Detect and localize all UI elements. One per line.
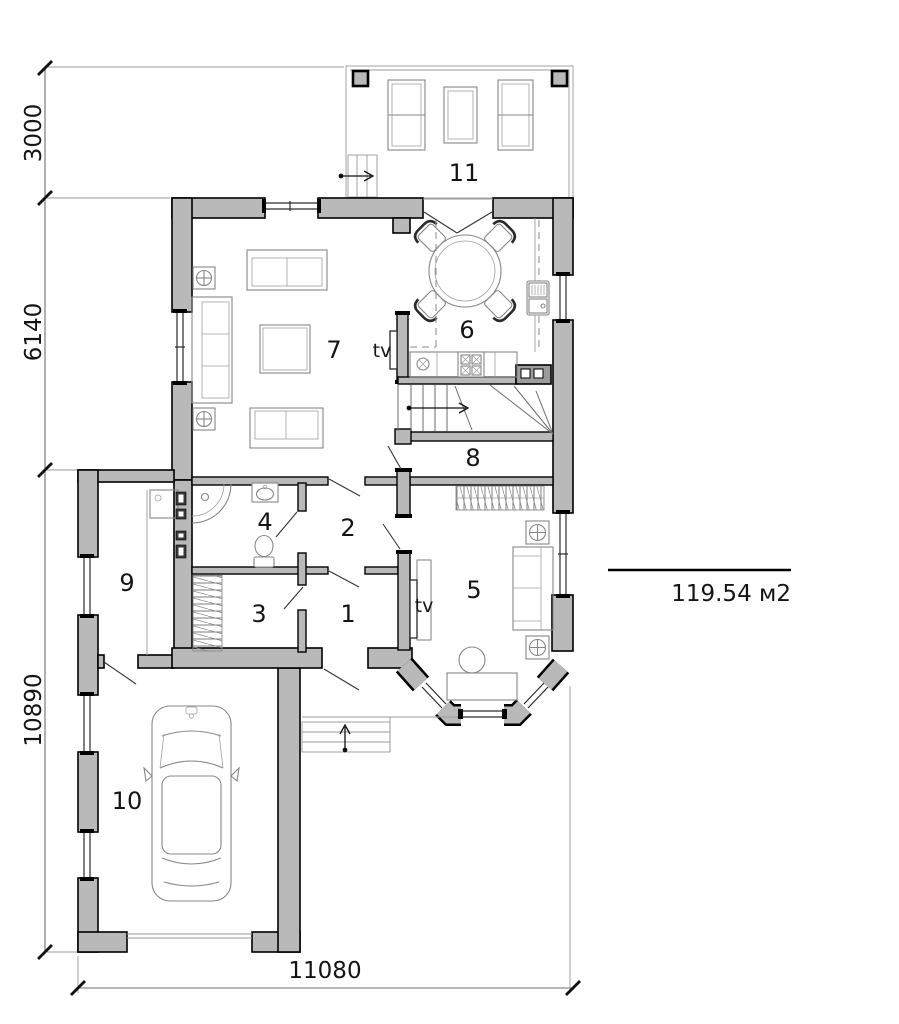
terrace-post	[353, 71, 368, 86]
dining-chair	[481, 218, 518, 255]
car	[144, 706, 239, 901]
speaker-icon	[193, 267, 215, 289]
stove	[458, 352, 484, 377]
sofa	[513, 547, 553, 630]
room-label-9: 9	[119, 569, 134, 597]
area-note: 119.54 м2	[608, 570, 791, 607]
windows	[80, 199, 570, 881]
window	[262, 199, 321, 213]
room-label-2: 2	[340, 514, 355, 542]
sofa	[247, 250, 327, 290]
window	[80, 554, 94, 881]
wardrobe	[193, 575, 222, 651]
room-label-6: 6	[459, 316, 474, 344]
stairs	[398, 384, 553, 434]
desk	[447, 673, 517, 700]
interior-walls	[192, 311, 553, 652]
terrace-lounge-chair	[498, 80, 533, 150]
room-label-1: 1	[340, 600, 355, 628]
window	[556, 272, 570, 323]
tv-label-living: tv	[373, 340, 392, 362]
toilet	[254, 536, 274, 568]
window	[173, 309, 187, 385]
dimension-11080: 11080	[288, 958, 361, 984]
extractor-icon	[417, 358, 429, 370]
room-label-4: 4	[257, 508, 272, 536]
porch	[302, 717, 458, 752]
terrace-post	[552, 71, 567, 86]
room-label-3: 3	[251, 600, 266, 628]
room-label-10: 10	[112, 787, 143, 815]
coffee-table	[260, 325, 310, 373]
floor-plan-page: 3000 6140 10890 11080 119.54 м2 11	[0, 0, 899, 1024]
sofa	[192, 297, 232, 403]
kitchen	[410, 218, 549, 377]
shower	[192, 484, 231, 523]
speaker-icon	[526, 636, 549, 659]
bedroom: tv	[410, 521, 553, 700]
living-room: tv	[192, 250, 397, 448]
floor-plan-drawing: 3000 6140 10890 11080 119.54 м2 11	[0, 0, 899, 1024]
room-label-8: 8	[465, 444, 480, 472]
terrace-table	[444, 87, 477, 143]
sofa	[250, 408, 323, 448]
dining-chair	[412, 218, 449, 255]
washbasin	[252, 483, 278, 502]
area-value: 119.54 м2	[671, 581, 791, 607]
dimension-10890: 10890	[21, 673, 47, 746]
room-label-5: 5	[466, 576, 481, 604]
terrace-steps	[339, 155, 377, 197]
dining-chair	[481, 287, 518, 324]
dimension-3000: 3000	[21, 104, 47, 163]
kitchen-sink	[527, 281, 549, 315]
dimension-6140: 6140	[21, 303, 47, 362]
tv-label-bedroom: tv	[415, 595, 434, 617]
window	[556, 510, 570, 598]
room-label-11: 11	[449, 159, 480, 187]
speaker-icon	[526, 521, 549, 544]
side-table	[459, 647, 485, 673]
terrace: 11	[339, 66, 573, 198]
dining-chair	[412, 287, 449, 324]
terrace-lounge-chair	[388, 80, 425, 150]
room-label-7: 7	[326, 336, 341, 364]
speaker-icon	[193, 408, 215, 430]
